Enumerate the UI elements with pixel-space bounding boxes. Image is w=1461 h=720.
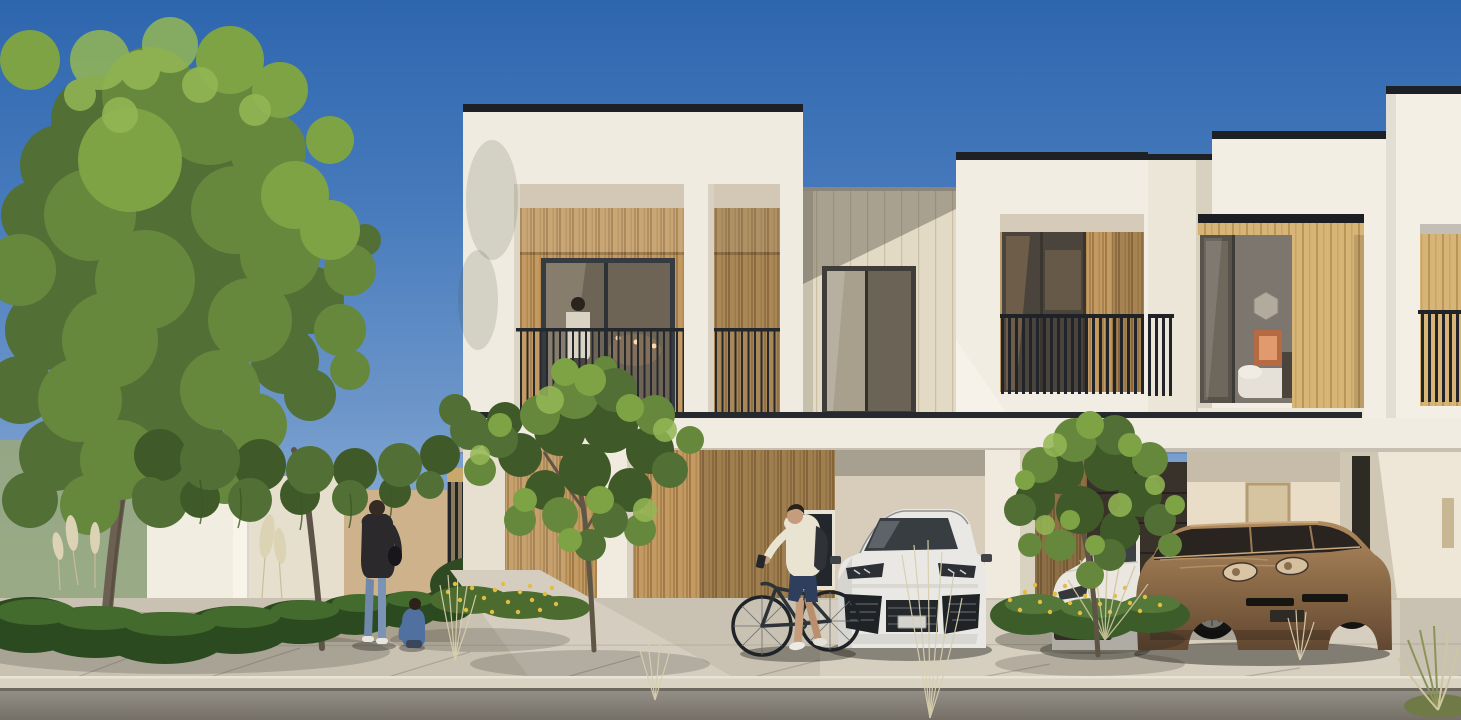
- suv-mirror: [830, 556, 841, 564]
- unit3-side-balustrade: [1418, 224, 1461, 406]
- child-head: [409, 598, 421, 610]
- unit3-coping-mid: [1212, 131, 1388, 139]
- unit2-parapet-coping: [956, 152, 1148, 160]
- unit1-balcony-recess: [514, 184, 780, 418]
- render-canvas: [0, 0, 1461, 720]
- bay-timber-face: [1292, 235, 1364, 411]
- jeans-leg: [378, 578, 386, 638]
- suv-mirror: [981, 554, 992, 562]
- bronze-grille: [1246, 598, 1294, 606]
- unit3-coping-tall: [1386, 86, 1461, 94]
- unit3-bay-window: [1198, 214, 1364, 416]
- link-panel-wall: [803, 187, 958, 418]
- link-bedroom-window: [820, 266, 918, 417]
- balcony-soffit: [514, 184, 780, 208]
- bronze-grille: [1302, 594, 1348, 602]
- jacket: [361, 514, 395, 578]
- unit1-parapet-coping: [463, 104, 803, 112]
- wing-balustrade: [1148, 318, 1174, 396]
- wall-niche: [1442, 498, 1454, 548]
- unit2-balcony-recess: [1000, 214, 1144, 394]
- woman-head: [369, 500, 385, 516]
- road: [0, 691, 1461, 720]
- townhouse-unit-2: [956, 152, 1148, 418]
- shoulder-bag: [388, 546, 402, 566]
- unit2-balustrade: [1000, 318, 1144, 394]
- scene-architectural-render: Daytime architectural rendering of a row…: [0, 0, 1461, 720]
- townhouse-unit-3: [1198, 86, 1461, 418]
- bronze-plate: [1270, 610, 1304, 622]
